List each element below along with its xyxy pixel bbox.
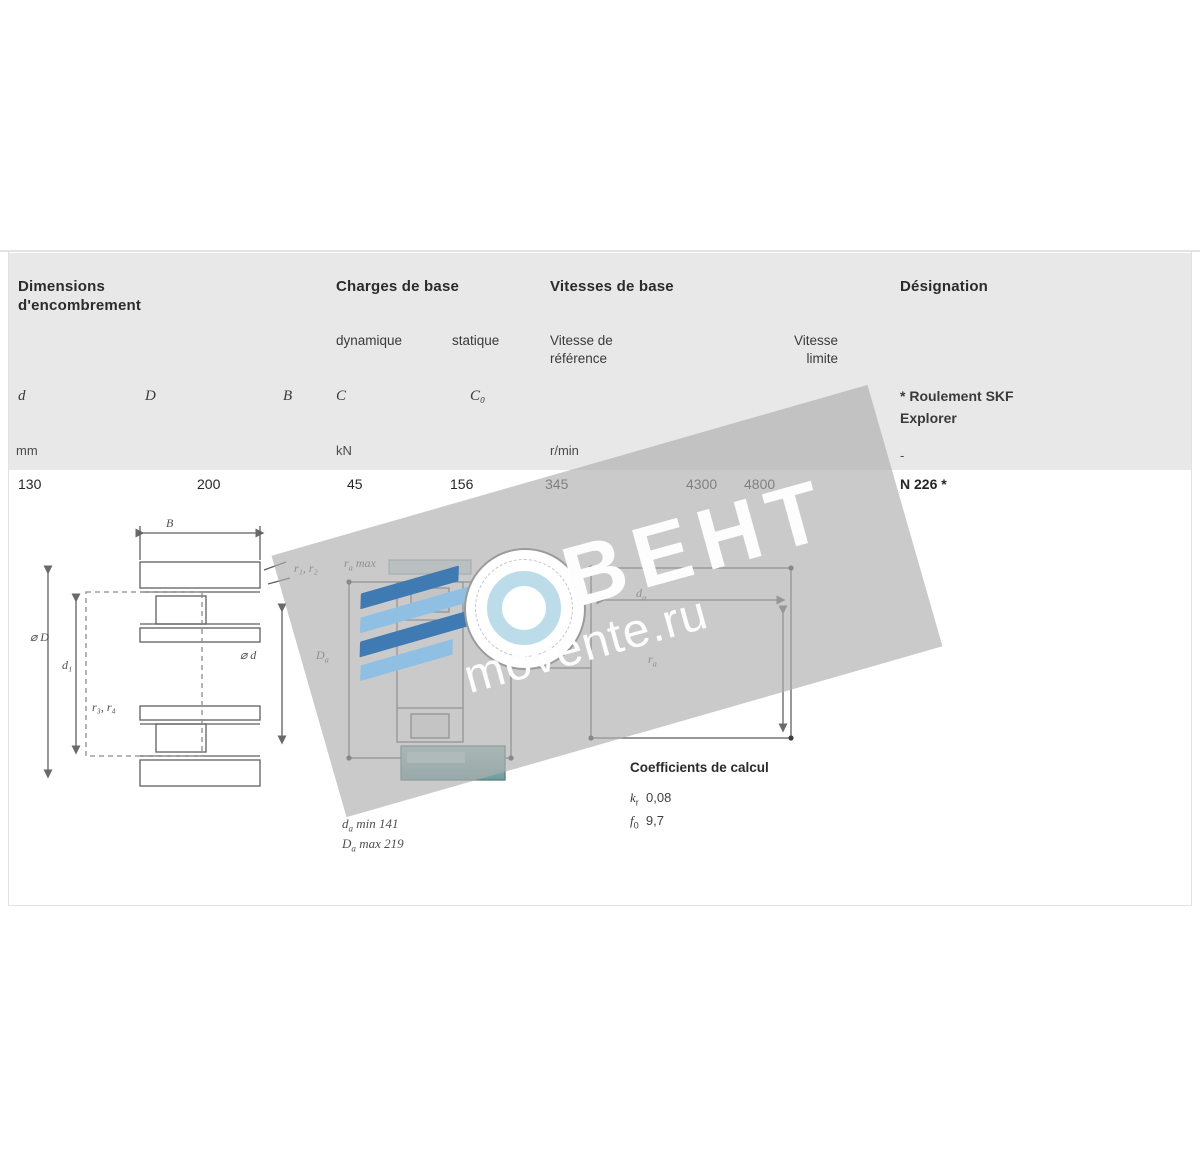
calc-factors-title: Coefficients de calcul bbox=[630, 760, 769, 775]
calc-factor-f0: f0 9,7 bbox=[630, 813, 664, 831]
dim-label-B: B bbox=[166, 516, 173, 531]
value-bore-d: 130 bbox=[18, 476, 41, 492]
dim-label-D: ⌀ D bbox=[30, 630, 49, 645]
subcol-static: statique bbox=[452, 333, 499, 348]
col-loads-title: Charges de base bbox=[336, 278, 459, 295]
col-speeds-title: Vitesses de base bbox=[550, 278, 674, 295]
value-width-B: 45 bbox=[347, 476, 363, 492]
abutment-note-2: Da max 219 bbox=[342, 836, 404, 854]
value-designation: N 226 * bbox=[900, 476, 947, 492]
col-dimensions-title-line2: d'encombrement bbox=[18, 297, 141, 314]
unit-dash: - bbox=[900, 448, 904, 463]
skf-explorer-note-line2: Explorer bbox=[900, 410, 957, 426]
left-border bbox=[8, 252, 9, 906]
calc-f0-value: 9,7 bbox=[646, 813, 664, 828]
subcol-ref-speed-line1: Vitesse de bbox=[550, 333, 613, 348]
col-designation-title: Désignation bbox=[900, 278, 988, 295]
calc-factor-kr: kr 0,08 bbox=[630, 790, 671, 808]
dim-label-r3-r4: r₃, r₄ bbox=[92, 700, 116, 715]
unit-rpm: r/min bbox=[550, 443, 579, 458]
calc-f0-sub: 0 bbox=[634, 821, 639, 831]
value-dynamic-load-C: 156 bbox=[450, 476, 473, 492]
calc-kr-sub: r bbox=[636, 798, 639, 808]
subcol-lim-speed-line1: Vitesse bbox=[740, 333, 838, 348]
symbol-B: B bbox=[283, 388, 292, 405]
calc-kr-value: 0,08 bbox=[646, 790, 671, 805]
note1-suffix: min 141 bbox=[353, 816, 399, 831]
bearing-cross-section-drawing bbox=[28, 512, 308, 788]
subcol-ref-speed-line2: référence bbox=[550, 351, 607, 366]
value-outer-D: 200 bbox=[197, 476, 220, 492]
subcol-dynamic: dynamique bbox=[336, 333, 402, 348]
dim-label-d: ⌀ d bbox=[240, 648, 256, 663]
unit-mm: mm bbox=[16, 443, 38, 458]
abutment-note-1: da min 141 bbox=[342, 816, 399, 834]
symbol-d: d bbox=[18, 388, 26, 405]
dim-label-d1: d₁ bbox=[62, 658, 72, 673]
catalog-page: Dimensions d'encombrement Charges de bas… bbox=[0, 0, 1200, 1165]
bottom-divider bbox=[8, 905, 1191, 906]
skf-explorer-note-line1: * Roulement SKF bbox=[900, 388, 1014, 404]
subcol-lim-speed-line2: limite bbox=[740, 351, 838, 366]
symbol-C: C bbox=[336, 388, 346, 405]
note2-suffix: max 219 bbox=[356, 836, 404, 851]
symbol-D: D bbox=[145, 388, 156, 405]
top-divider bbox=[0, 250, 1200, 252]
col-dimensions-title-line1: Dimensions bbox=[18, 278, 105, 295]
symbol-C0: C₀ bbox=[470, 388, 485, 405]
unit-kn: kN bbox=[336, 443, 352, 458]
note2-base: D bbox=[342, 836, 351, 851]
right-border bbox=[1191, 252, 1192, 906]
